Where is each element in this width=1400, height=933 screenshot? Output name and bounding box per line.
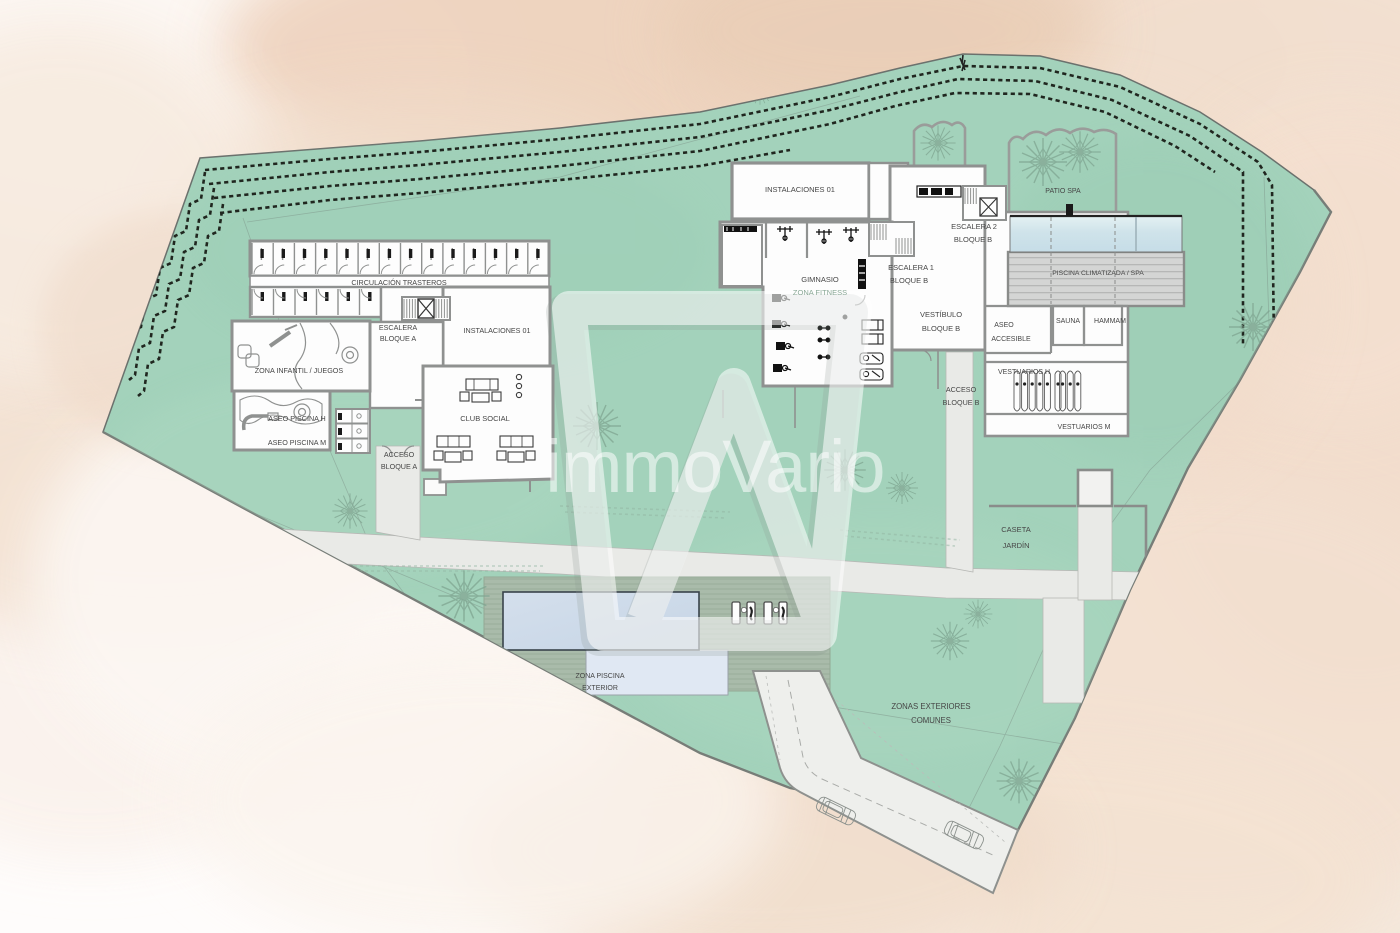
svg-text:BLOQUE B: BLOQUE B	[890, 276, 928, 285]
svg-text:CLUB SOCIAL: CLUB SOCIAL	[460, 414, 510, 423]
svg-text:ESCALERA 2: ESCALERA 2	[951, 222, 997, 231]
svg-text:ASEO PISCINA M: ASEO PISCINA M	[268, 438, 326, 447]
svg-text:CIRCULACIÓN TRASTEROS: CIRCULACIÓN TRASTEROS	[351, 278, 447, 287]
svg-text:ACCESO: ACCESO	[946, 385, 977, 394]
svg-text:ZONA FITNESS: ZONA FITNESS	[793, 288, 847, 297]
svg-text:GIMNASIO: GIMNASIO	[801, 275, 839, 284]
svg-text:ZONAS EXTERIORES: ZONAS EXTERIORES	[891, 702, 970, 711]
svg-text:INSTALACIONES 01: INSTALACIONES 01	[765, 185, 835, 194]
svg-text:SAUNA: SAUNA	[1056, 318, 1080, 325]
svg-text:ASEO PISCINA H: ASEO PISCINA H	[268, 414, 326, 423]
svg-text:VESTUARIOS M: VESTUARIOS M	[1058, 424, 1111, 431]
svg-text:BLOQUE A: BLOQUE A	[380, 334, 417, 343]
svg-text:VESTUARIOS H: VESTUARIOS H	[998, 369, 1050, 376]
svg-text:ACCESO: ACCESO	[384, 450, 415, 459]
svg-text:CASETA: CASETA	[1001, 525, 1030, 534]
svg-text:BLOQUE A: BLOQUE A	[381, 462, 418, 471]
svg-text:ZONA INFANTIL / JUEGOS: ZONA INFANTIL / JUEGOS	[255, 366, 344, 375]
svg-text:EXTERIOR: EXTERIOR	[582, 685, 618, 692]
svg-text:BLOQUE B: BLOQUE B	[943, 398, 980, 407]
svg-text:ESCALERA 1: ESCALERA 1	[888, 263, 934, 272]
svg-text:immoVario: immoVario	[545, 425, 884, 508]
svg-text:VESTÍBULO: VESTÍBULO	[920, 310, 962, 319]
svg-text:COMUNES: COMUNES	[911, 716, 951, 725]
svg-text:ESCALERA: ESCALERA	[379, 323, 418, 332]
svg-text:HAMMAM: HAMMAM	[1094, 318, 1126, 325]
svg-text:BLOQUE B: BLOQUE B	[922, 324, 960, 333]
svg-text:INSTALACIONES 01: INSTALACIONES 01	[464, 326, 531, 335]
svg-text:JARDÍN: JARDÍN	[1002, 541, 1029, 550]
svg-text:PISCINA CLIMATIZADA / SPA: PISCINA CLIMATIZADA / SPA	[1052, 270, 1144, 277]
svg-text:ACCESIBLE: ACCESIBLE	[991, 336, 1031, 343]
svg-text:ASEO: ASEO	[994, 322, 1014, 329]
svg-text:PATIO SPA: PATIO SPA	[1045, 188, 1081, 195]
svg-text:ZONA PISCINA: ZONA PISCINA	[575, 673, 624, 680]
svg-text:BLOQUE B: BLOQUE B	[954, 235, 992, 244]
